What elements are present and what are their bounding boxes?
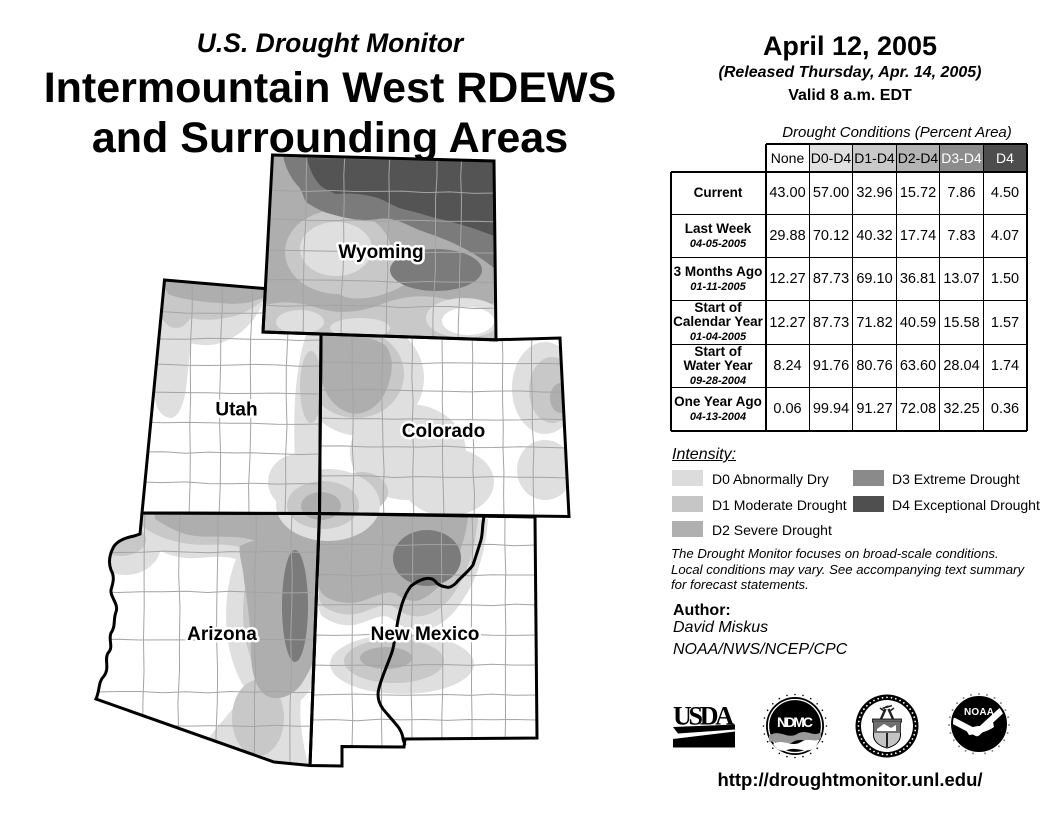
svg-text:NDMC: NDMC <box>777 714 813 730</box>
svg-text:NOAA: NOAA <box>964 707 994 718</box>
